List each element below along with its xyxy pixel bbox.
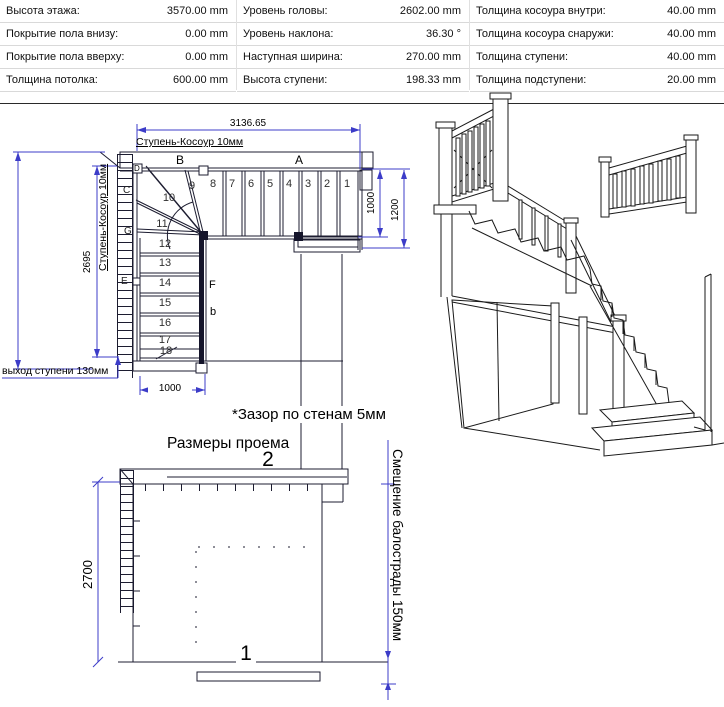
post-marker-e: Е	[121, 276, 128, 287]
opening-edge-2: 2	[258, 448, 278, 472]
dim-right-inner: 1000	[366, 192, 377, 214]
step-number: 11	[154, 218, 170, 230]
step-number: 3	[301, 178, 315, 190]
balustrade-offset-label: Смещение балострады 150мм	[390, 449, 405, 641]
beam-letter-b: В	[172, 153, 188, 167]
step-number: 1	[340, 178, 354, 190]
stair-design-document: Высота этажа:3570.00 mm Покрытие пола вн…	[0, 0, 724, 707]
post-marker-b: b	[210, 306, 216, 318]
dim-right-outer: 1200	[390, 199, 401, 221]
post-marker-c: С	[123, 185, 130, 196]
drawings-canvas	[0, 0, 724, 707]
step-number: 4	[282, 178, 296, 190]
dim-left-height: 2695	[82, 251, 93, 273]
step-number: 12	[157, 238, 173, 250]
dim-top-width: 3136.65	[218, 118, 278, 129]
step-number: 5	[263, 178, 277, 190]
step-number: 14	[157, 277, 173, 289]
step-exit-label: выход ступени 130мм	[2, 365, 108, 377]
step-number: 6	[244, 178, 258, 190]
beam-letter-a: А	[291, 153, 307, 167]
dim-flight-width: 1000	[148, 383, 192, 394]
step-number: 2	[320, 178, 334, 190]
step-number: 13	[157, 257, 173, 269]
step-number: 9	[185, 180, 199, 192]
post-marker-f: F	[209, 279, 216, 291]
step-number: 10	[161, 192, 177, 204]
stringer-label-top: Ступень-Косоур 10мм	[136, 136, 243, 148]
post-marker-d: D	[134, 164, 140, 173]
step-number: 16	[157, 317, 173, 329]
post-marker-g: G	[124, 226, 132, 237]
wall-gap-note: *Зазор по стенам 5мм	[232, 406, 386, 423]
step-number: 8	[206, 178, 220, 190]
stringer-label-left: Ступень-Косоур 10мм	[97, 164, 109, 271]
step-number: 15	[157, 297, 173, 309]
step-number: 18	[158, 345, 174, 357]
opening-dim-height: 2700	[80, 560, 95, 589]
opening-edge-1: 1	[236, 642, 256, 666]
isometric-stair-view	[434, 93, 724, 456]
step-number: 7	[225, 178, 239, 190]
